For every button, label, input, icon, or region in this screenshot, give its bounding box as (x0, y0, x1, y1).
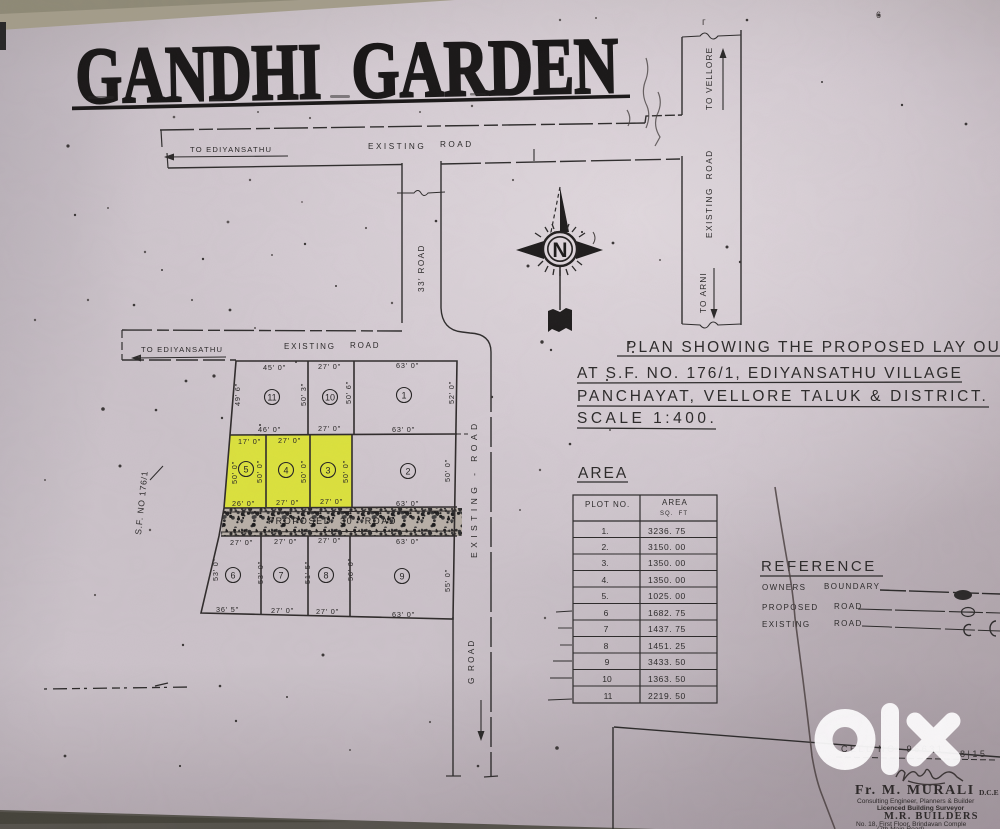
svg-text:г: г (702, 17, 706, 28)
svg-text:6: 6 (876, 10, 881, 20)
